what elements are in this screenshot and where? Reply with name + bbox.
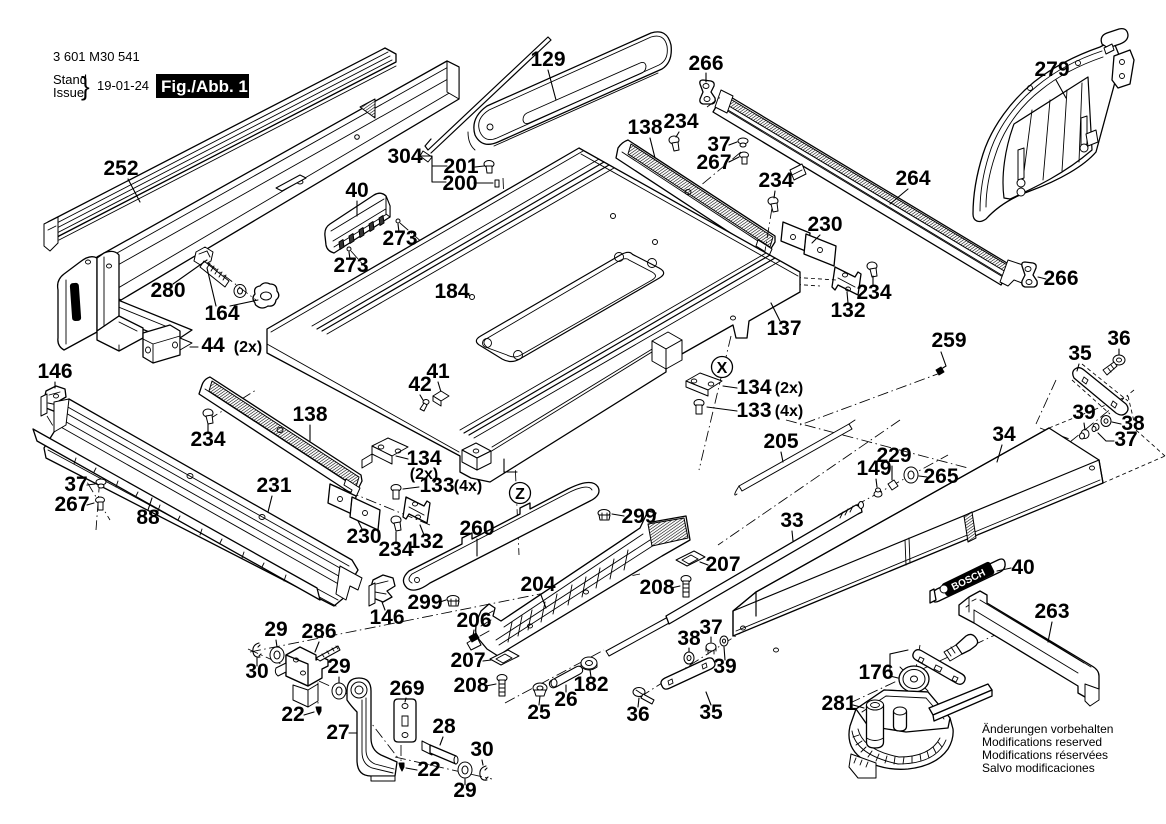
svg-text:22: 22 — [281, 703, 304, 726]
svg-text:33: 33 — [780, 509, 803, 532]
svg-text:267: 267 — [54, 493, 89, 516]
svg-text:269: 269 — [389, 677, 424, 700]
svg-text:133: 133 — [419, 474, 454, 497]
svg-text:29: 29 — [264, 618, 287, 641]
svg-text:(2x): (2x) — [775, 380, 803, 397]
svg-text:146: 146 — [369, 606, 404, 629]
svg-text:42: 42 — [408, 373, 431, 396]
svg-text:234: 234 — [663, 110, 698, 133]
svg-text:35: 35 — [1068, 342, 1092, 365]
svg-text:Z: Z — [515, 486, 525, 503]
svg-text:Modifications réservées: Modifications réservées — [982, 748, 1108, 762]
svg-text:138: 138 — [292, 403, 327, 426]
svg-text:149: 149 — [856, 457, 891, 480]
svg-text:266: 266 — [688, 52, 723, 75]
svg-text:286: 286 — [301, 620, 336, 643]
svg-text:207: 207 — [705, 553, 740, 576]
svg-text:38: 38 — [677, 627, 701, 650]
svg-text:138: 138 — [627, 116, 662, 139]
svg-text:129: 129 — [530, 48, 565, 71]
svg-text:260: 260 — [459, 517, 494, 540]
svg-text:273: 273 — [382, 227, 417, 250]
svg-text:267: 267 — [696, 151, 731, 174]
svg-text:259: 259 — [931, 329, 966, 352]
svg-text:234: 234 — [856, 281, 891, 304]
svg-text:39: 39 — [1072, 401, 1095, 424]
svg-text:208: 208 — [453, 674, 488, 697]
svg-text:230: 230 — [807, 213, 842, 236]
svg-text:Modifications reserved: Modifications reserved — [982, 735, 1102, 749]
svg-text:134: 134 — [736, 376, 771, 399]
svg-text:(4x): (4x) — [775, 403, 803, 420]
svg-text:205: 205 — [763, 430, 798, 453]
svg-text:265: 265 — [923, 465, 958, 488]
svg-text:36: 36 — [1107, 327, 1130, 350]
svg-text:27: 27 — [326, 721, 349, 744]
svg-text:40: 40 — [345, 179, 368, 202]
svg-text:}: } — [81, 71, 90, 101]
svg-text:29: 29 — [327, 655, 350, 678]
svg-text:273: 273 — [333, 254, 368, 277]
svg-text:230: 230 — [346, 525, 381, 548]
svg-text:264: 264 — [895, 167, 930, 190]
svg-text:(4x): (4x) — [454, 478, 482, 495]
svg-text:279: 279 — [1034, 58, 1069, 81]
svg-text:281: 281 — [821, 692, 856, 715]
svg-text:X: X — [717, 360, 728, 377]
svg-text:146: 146 — [37, 360, 72, 383]
svg-text:Salvo modificaciones: Salvo modificaciones — [982, 761, 1095, 775]
svg-text:34: 34 — [992, 423, 1016, 446]
svg-text:299: 299 — [621, 505, 656, 528]
svg-text:266: 266 — [1043, 267, 1078, 290]
svg-text:207: 207 — [450, 649, 485, 672]
svg-text:132: 132 — [408, 530, 443, 553]
svg-text:40: 40 — [1011, 556, 1034, 579]
svg-text:206: 206 — [456, 609, 491, 632]
svg-text:252: 252 — [103, 157, 138, 180]
svg-text:263: 263 — [1034, 600, 1069, 623]
svg-text:19-01-24: 19-01-24 — [97, 78, 149, 93]
svg-text:22: 22 — [417, 758, 440, 781]
svg-text:176: 176 — [858, 661, 893, 684]
svg-text:30: 30 — [470, 738, 493, 761]
svg-text:3 601 M30 541: 3 601 M30 541 — [53, 49, 140, 64]
svg-text:(2x): (2x) — [234, 339, 262, 356]
svg-text:137: 137 — [766, 317, 801, 340]
svg-text:37: 37 — [1114, 428, 1137, 451]
svg-text:234: 234 — [758, 169, 793, 192]
svg-text:280: 280 — [150, 279, 185, 302]
svg-text:231: 231 — [256, 474, 291, 497]
svg-text:304: 304 — [387, 145, 422, 168]
svg-text:200: 200 — [442, 172, 477, 195]
svg-text:208: 208 — [639, 576, 674, 599]
svg-text:204: 204 — [520, 573, 555, 596]
svg-text:Änderungen vorbehalten: Änderungen vorbehalten — [982, 722, 1113, 736]
svg-text:Issue: Issue — [53, 85, 84, 100]
svg-text:28: 28 — [432, 715, 456, 738]
svg-text:44: 44 — [201, 334, 225, 357]
svg-text:Fig./Abb. 1: Fig./Abb. 1 — [161, 77, 248, 96]
svg-text:37: 37 — [699, 616, 722, 639]
svg-text:184: 184 — [434, 280, 469, 303]
svg-text:299: 299 — [407, 591, 442, 614]
svg-text:133: 133 — [736, 399, 771, 422]
